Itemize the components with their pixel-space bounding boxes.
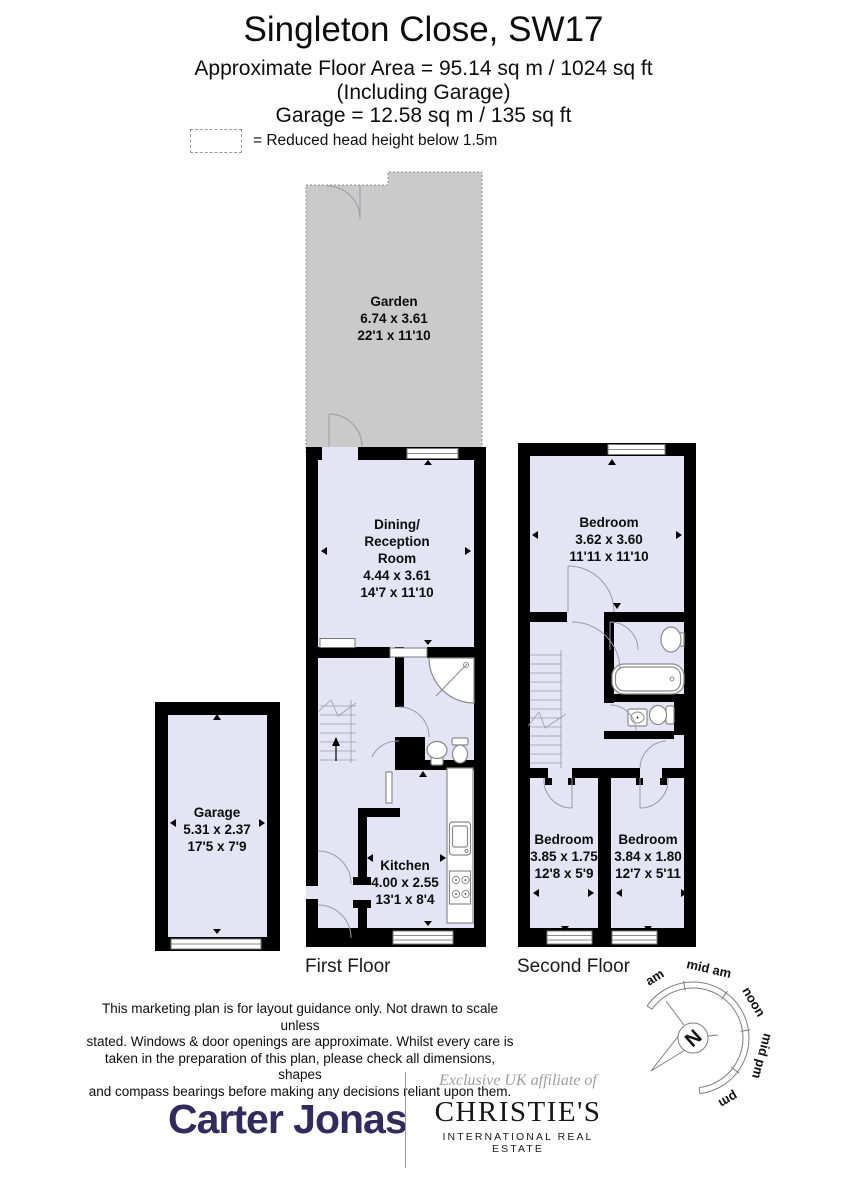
room-label-garage: Garage 5.31 x 2.37 17'5 x 7'9 [183,804,251,855]
compass-label-mid-pm: mid pm [749,1032,775,1081]
christies-wordmark: CHRISTIE'S [418,1096,618,1129]
first-floor-label: First Floor [305,956,391,978]
room-label-bedroom3: Bedroom 3.84 x 1.80 12'7 x 5'11 [614,831,682,882]
room-label-bedroom1: Bedroom 3.62 x 3.60 11'11 x 11'10 [569,514,648,565]
logo-divider [405,1072,406,1168]
room-label-kitchen: Kitchen 4.00 x 2.55 13'1 x 8'4 [371,857,439,908]
bathtub-icon [612,664,684,694]
room-label-garden: Garden 6.74 x 3.61 22'1 x 11'10 [357,293,430,344]
toilet-icon [650,706,675,725]
christies-logo-block: Exclusive UK affiliate of CHRISTIE'S INT… [418,1072,618,1155]
sink-icon [628,709,647,726]
second-floor-label: Second Floor [517,956,630,978]
compass-label-mid-am: mid am [685,956,733,981]
hob-icon [450,871,471,904]
christies-subtitle: INTERNATIONAL REAL ESTATE [418,1131,618,1155]
toilet-icon [452,738,468,763]
floorplan-page: Singleton Close, SW17 Approximate Floor … [0,0,847,1200]
compass: N am mid am noon mid pm pm [643,956,776,1111]
affiliate-tagline: Exclusive UK affiliate of [418,1072,618,1090]
compass-label-pm: pm [716,1089,740,1112]
room-label-bedroom2: Bedroom 3.85 x 1.75 12'8 x 5'9 [530,831,598,882]
compass-label-am: am [643,966,667,989]
carter-jonas-logo: Carter Jonas [168,1096,407,1143]
room-label-dining: Dining/ Reception Room 4.44 x 3.61 14'7 … [360,516,433,601]
